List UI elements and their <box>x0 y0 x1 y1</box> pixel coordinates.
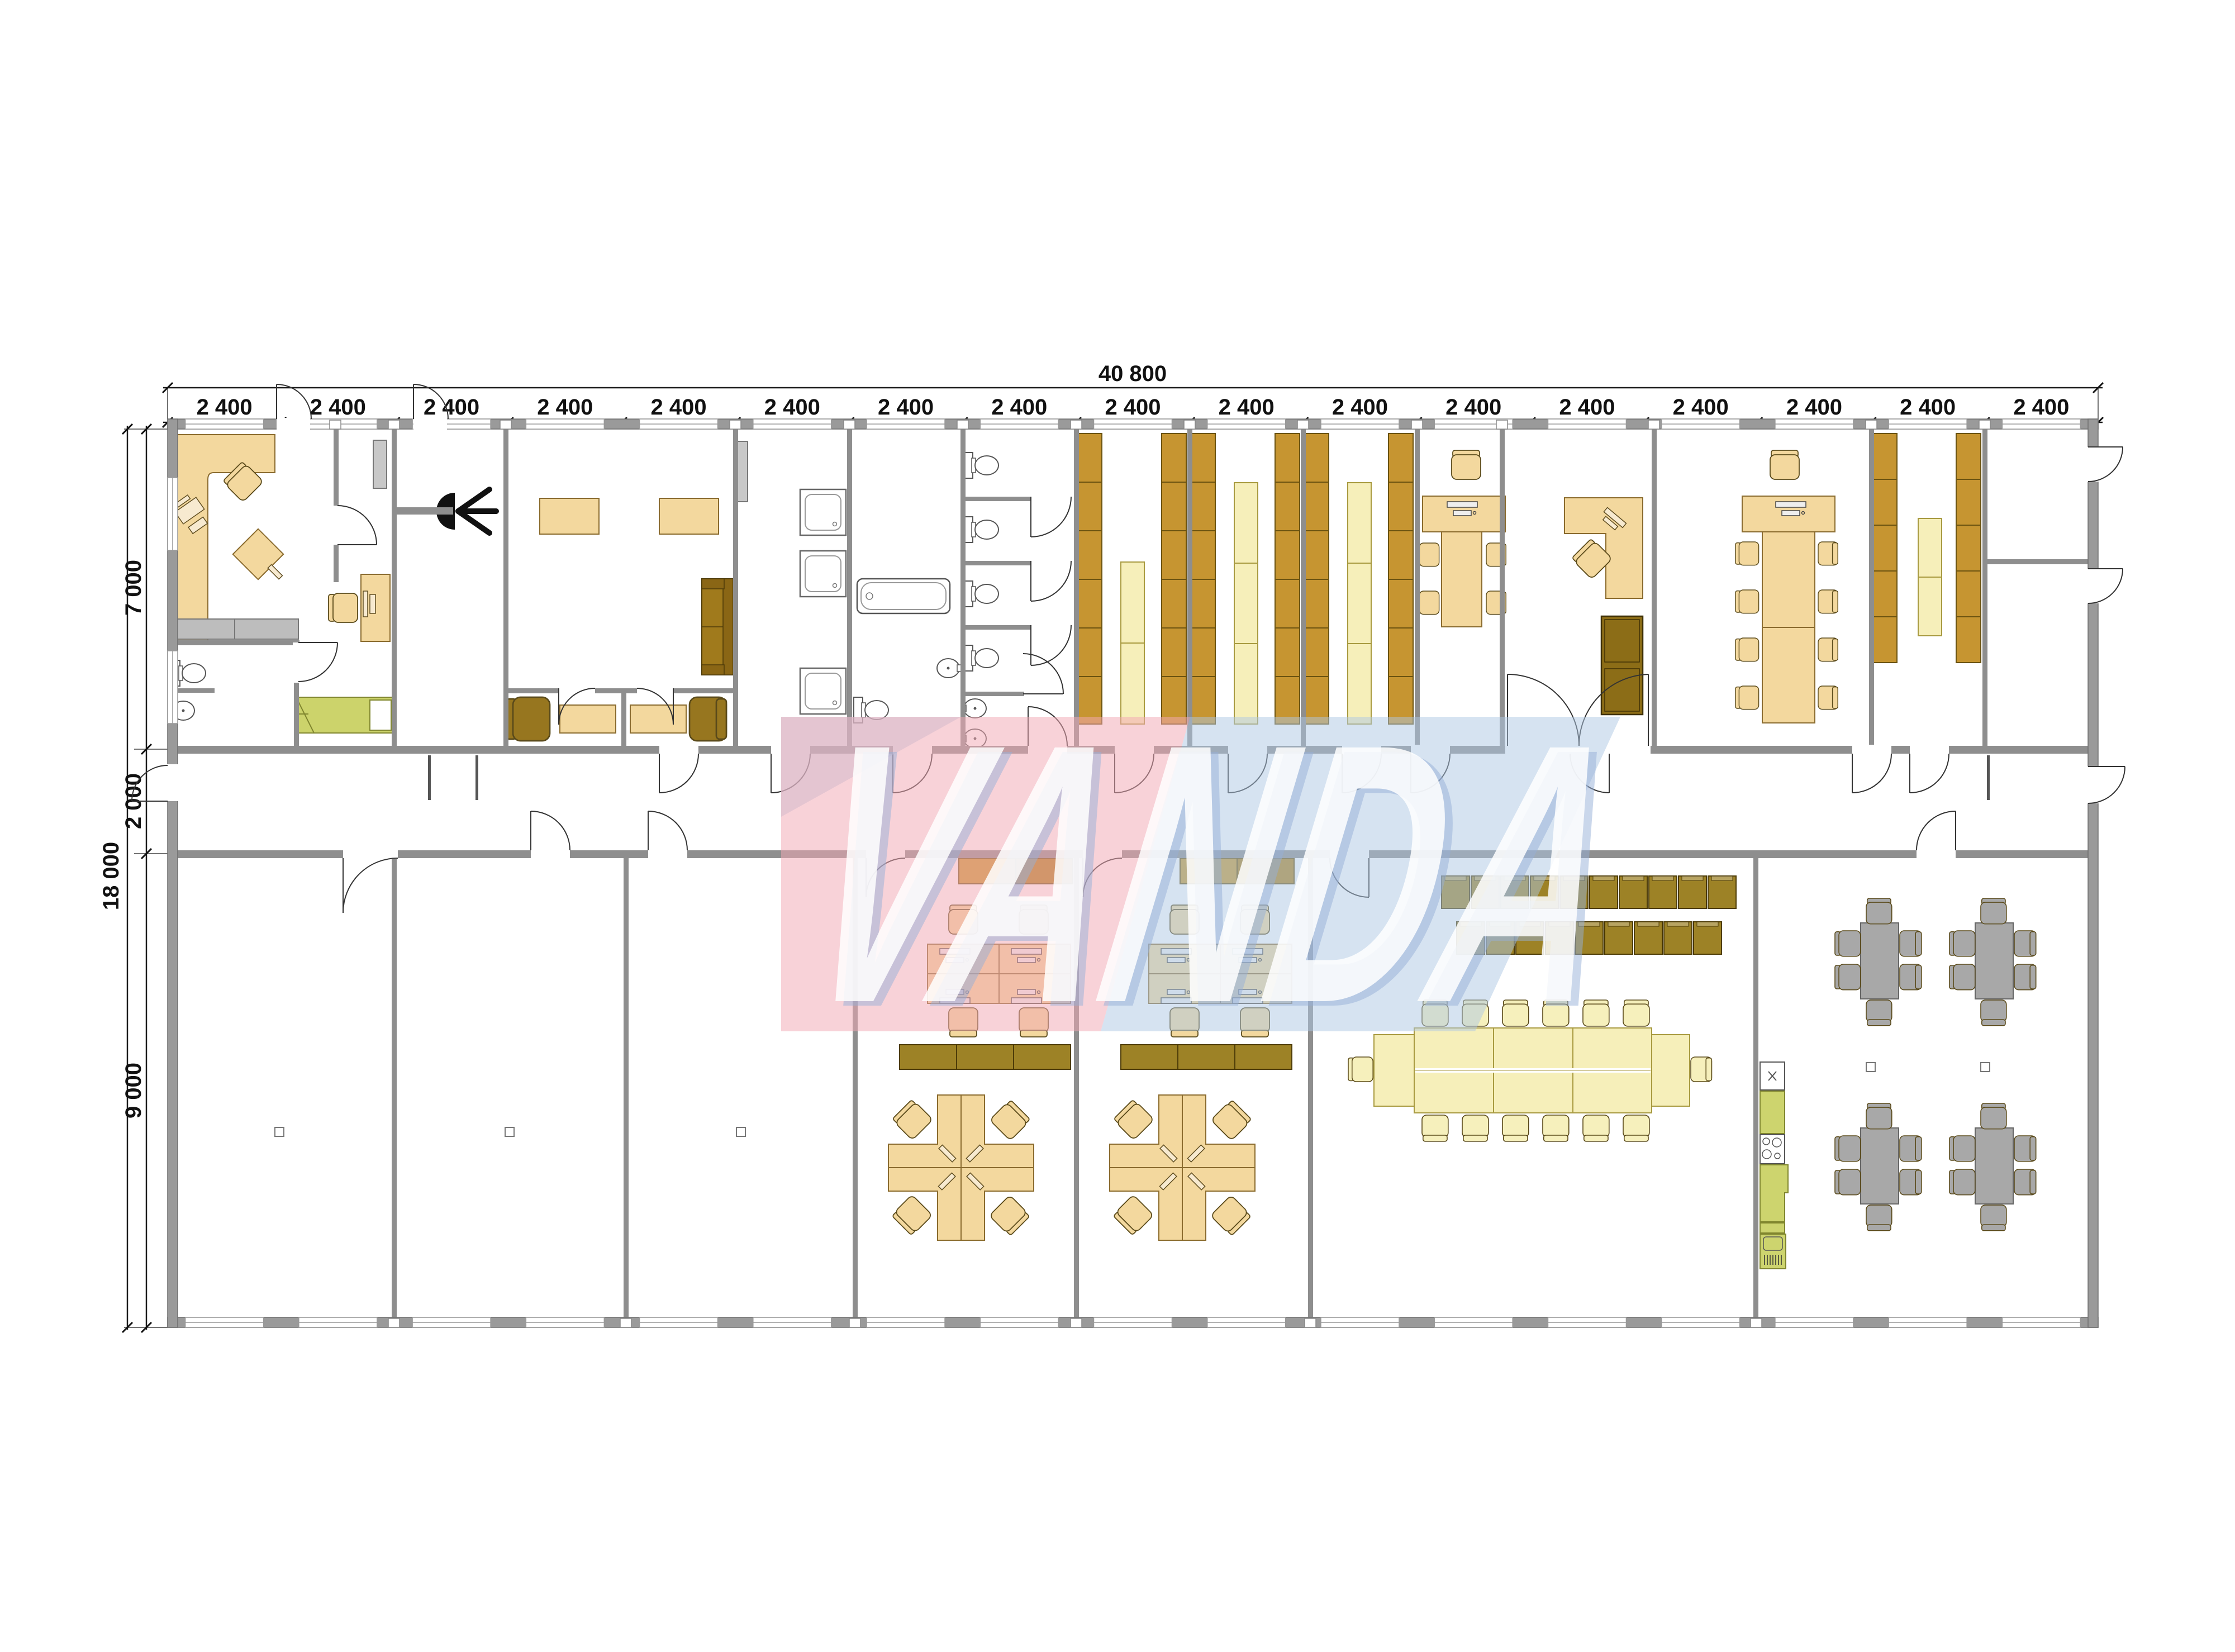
door <box>1917 849 1956 859</box>
locker-icon <box>1678 876 1706 908</box>
dimension-label: 2 400 <box>310 395 366 420</box>
column-marker <box>1981 1063 1990 1072</box>
wall-cap <box>849 1318 860 1327</box>
dimension-label: 2 400 <box>1559 395 1615 420</box>
watermark: VANDA VANDA <box>777 667 1654 1084</box>
table-icon <box>560 705 616 733</box>
chair-icon <box>1462 1115 1489 1141</box>
dimension-label: 2 400 <box>1786 395 1842 420</box>
door-swing <box>1031 561 1071 601</box>
door-swing <box>337 506 377 545</box>
wall-cap <box>388 1318 400 1327</box>
column-marker <box>736 1127 745 1136</box>
wall-cap <box>500 420 511 429</box>
chair-icon <box>1583 1115 1609 1141</box>
dimension-total-width: 40 800 <box>1099 361 1167 386</box>
dimension-label: 2 400 <box>1332 395 1388 420</box>
shower-icon <box>800 551 846 597</box>
interior-wall <box>392 858 397 1317</box>
chair-icon <box>1735 638 1759 661</box>
dimension-label: 2 400 <box>537 395 593 420</box>
toilet-icon <box>964 581 998 607</box>
chair-icon <box>1818 686 1838 710</box>
wall-cap <box>1071 420 1082 429</box>
interior-wall <box>1869 429 1874 746</box>
dining-table-icon <box>1835 898 1922 1026</box>
dining-table-icon <box>1835 1103 1922 1231</box>
wall-cap <box>1751 1318 1762 1327</box>
door-swing <box>277 384 311 419</box>
column-marker <box>275 1127 284 1136</box>
conference-table-icon <box>1442 532 1482 627</box>
wall-cap <box>1305 1318 1316 1327</box>
door-swing <box>1031 497 1071 537</box>
interior-wall <box>1985 559 2098 564</box>
door-swing <box>1917 811 1956 850</box>
shelf-icon <box>1956 434 1981 663</box>
keyboard-icon <box>370 594 375 613</box>
monitor-icon <box>363 591 368 617</box>
interior-wall <box>733 429 738 746</box>
dimension-label: 2 400 <box>1219 395 1275 420</box>
dining-table-icon <box>1949 898 2036 1026</box>
wall-cap <box>1184 420 1195 429</box>
watermark-text: VANDA <box>777 667 1647 1079</box>
dimension-label: 2 400 <box>878 395 934 420</box>
dimension-label: 2 400 <box>1673 395 1729 420</box>
shower-icon <box>800 489 846 535</box>
fridge-icon <box>1760 1234 1786 1269</box>
wall-cap <box>844 420 855 429</box>
interior-wall <box>595 688 637 693</box>
dining-table-icon <box>1949 1103 2036 1231</box>
locker-icon <box>1694 922 1722 954</box>
chair-icon <box>1691 1057 1711 1082</box>
door <box>2087 447 2099 482</box>
dimension-label: 2 400 <box>991 395 1047 420</box>
door <box>531 849 570 859</box>
door-swing <box>1031 625 1071 665</box>
door-swing <box>1852 754 1891 793</box>
dimension-label: 2 400 <box>197 395 253 420</box>
table-icon <box>630 705 686 733</box>
table-icon <box>659 498 719 534</box>
toilet-icon <box>964 517 998 542</box>
wall-cap <box>1648 420 1659 429</box>
dimension-height-1: 7 000 <box>121 560 146 616</box>
door <box>2087 569 2099 603</box>
dimension-label: 2 400 <box>764 395 820 420</box>
chair-icon <box>1623 1115 1649 1141</box>
chair-icon <box>1735 542 1759 565</box>
column-marker <box>1866 1063 1875 1072</box>
door <box>1910 745 1949 755</box>
door <box>413 418 447 430</box>
shower-icon <box>800 668 846 714</box>
locker-icon <box>1619 876 1647 908</box>
door-swing <box>648 811 687 850</box>
chair-icon <box>1452 450 1481 479</box>
exterior-wall <box>168 419 178 1327</box>
door <box>648 849 687 859</box>
chair-icon <box>1422 1115 1448 1141</box>
chair-icon <box>1770 450 1799 479</box>
interior-wall <box>392 429 397 746</box>
floor-plan: 40 800 18 000 7 000 2 000 9 000 2 4002 4… <box>0 0 2235 1652</box>
locker-icon <box>1649 876 1677 908</box>
bed-icon <box>296 697 394 733</box>
locker-icon <box>1605 922 1633 954</box>
interior-wall <box>1982 429 1987 746</box>
door-swing <box>298 642 337 682</box>
door <box>2087 767 2099 803</box>
wall-cap <box>957 420 968 429</box>
dimension-label: 2 400 <box>2013 395 2069 420</box>
chair-icon <box>1735 590 1759 613</box>
door-swing <box>531 811 570 850</box>
door-swing <box>343 858 398 913</box>
panel-icon <box>373 440 387 488</box>
armchair-icon <box>689 697 726 741</box>
dimension-label: 2 400 <box>424 395 479 420</box>
table-icon <box>540 498 599 534</box>
locker-icon <box>1634 922 1662 954</box>
door <box>167 764 179 801</box>
wall-cap <box>1297 420 1309 429</box>
dimension-total-height: 18 000 <box>99 842 123 910</box>
interior-wall <box>503 429 508 746</box>
stove-icon <box>1760 1135 1785 1164</box>
interior-wall <box>334 429 339 506</box>
door <box>293 642 302 683</box>
toilet-icon <box>964 453 998 478</box>
interior-wall <box>673 688 735 693</box>
chair-icon <box>1543 1115 1569 1141</box>
locker-icon <box>1708 876 1736 908</box>
wall-cap <box>1496 420 1508 429</box>
interior-wall <box>394 507 453 515</box>
dimension-label: 2 400 <box>1900 395 1956 420</box>
door-leaf <box>475 755 478 800</box>
interior-wall <box>963 625 1031 630</box>
door-swing <box>1910 754 1949 793</box>
column-marker <box>505 1127 514 1136</box>
kitchen-unit-icon <box>1760 1062 1788 1269</box>
dimension-label: 2 400 <box>1105 395 1161 420</box>
shelf-icon <box>1872 434 1897 663</box>
interior-wall <box>1753 858 1758 1317</box>
chair-icon <box>1735 686 1759 710</box>
interior-wall <box>963 561 1031 565</box>
interior-wall <box>1652 429 1657 746</box>
door <box>343 849 398 859</box>
door <box>1852 745 1891 755</box>
chair-icon <box>1623 1000 1649 1026</box>
wall-cap <box>1866 420 1877 429</box>
chair-icon <box>1818 542 1838 565</box>
door-leaf <box>428 755 431 800</box>
dimension-label: 2 400 <box>1445 395 1501 420</box>
wall-cap <box>388 420 400 429</box>
wall-cap <box>1411 420 1423 429</box>
locker-icon <box>1664 922 1692 954</box>
interior-wall <box>334 545 339 582</box>
interior-wall <box>624 858 629 1317</box>
keyboard-icon <box>268 565 282 579</box>
shelf-icon <box>1918 518 1942 636</box>
chair-icon <box>1818 638 1838 661</box>
chair-icon <box>1502 1115 1529 1141</box>
wall-cap <box>1979 420 1990 429</box>
wall-cap <box>330 420 341 429</box>
bathtub-icon <box>857 579 950 613</box>
door <box>659 745 698 755</box>
interior-wall <box>621 688 626 749</box>
dimension-label: 2 400 <box>651 395 707 420</box>
sofa-icon <box>702 579 733 675</box>
door <box>332 506 341 545</box>
door-leaf <box>1987 755 1990 800</box>
chair-icon <box>1818 590 1838 613</box>
dimension-height-3: 9 000 <box>121 1063 146 1118</box>
interior-wall <box>168 640 299 645</box>
wall-cap <box>620 1318 631 1327</box>
armchair-icon <box>506 697 550 741</box>
door-swing <box>659 754 698 793</box>
chair-icon <box>329 593 358 622</box>
exterior-wall <box>2088 419 2098 1327</box>
interior-wall <box>506 688 559 693</box>
interior-wall <box>963 497 1031 501</box>
door <box>277 418 310 430</box>
wall-cap <box>730 420 741 429</box>
wall-cap <box>1071 1318 1082 1327</box>
corner-desk-icon <box>1564 498 1643 598</box>
